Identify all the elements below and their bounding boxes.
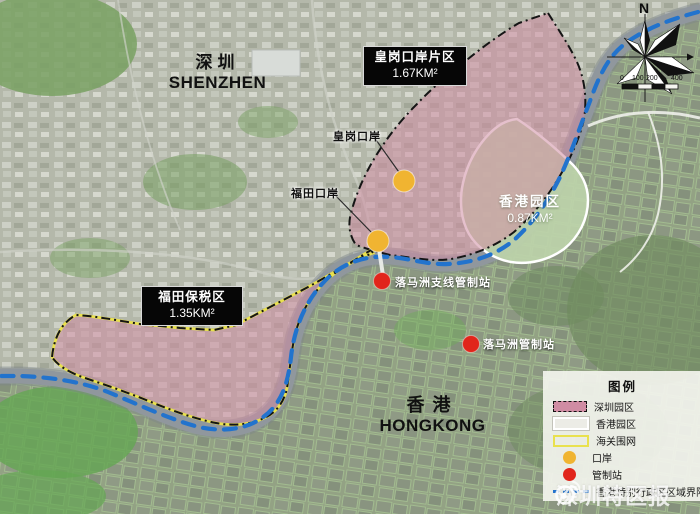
port-dot-futian <box>367 230 389 252</box>
legend-label: 深圳园区 <box>594 399 634 414</box>
checkpoint-label-lokmachau: 落马洲管制站 <box>483 336 555 352</box>
shenzhen-zone-swatch <box>553 401 587 412</box>
port-dot-swatch <box>563 451 576 464</box>
zone-name: 香港园区 <box>478 193 582 211</box>
park-patch <box>50 238 130 278</box>
park-patch <box>238 106 298 138</box>
scale-tick: 0 <box>620 75 624 82</box>
zone-area: 1.67KM² <box>368 66 462 81</box>
zone-name: 福田保税区 <box>146 290 238 306</box>
city-label-shenzhen: 深圳 SHENZHEN <box>155 53 280 92</box>
scale-tick: 200 <box>646 75 658 82</box>
hongkong-zone-swatch <box>553 417 589 430</box>
legend-label: 海关围网 <box>596 433 636 448</box>
scale-tick: 400 <box>671 75 683 82</box>
north-label: N <box>639 0 649 16</box>
city-label-hongkong: 香港 HONGKONG <box>370 395 495 435</box>
zone-label-hongkong-park: 香港园区 0.87KM² <box>478 193 582 226</box>
legend-item-customs-fence: 海关围网 <box>553 434 692 447</box>
scale-bar <box>622 84 678 89</box>
legend-item-hongkong-zone: 香港园区 <box>553 417 692 430</box>
legend-label: 口岸 <box>592 450 612 465</box>
weibo-icon <box>552 479 580 507</box>
checkpoint-dot-lokmachau-spur <box>374 273 391 290</box>
green-patch <box>394 310 466 350</box>
checkpoint-dot-lokmachau <box>463 336 480 353</box>
port-label-huanggang: 皇岗口岸 <box>333 128 381 144</box>
legend-item-shenzhen-zone: 深圳园区 <box>553 400 692 413</box>
zone-area: 1.35KM² <box>146 306 238 321</box>
shenzhen-en: SHENZHEN <box>155 73 280 93</box>
legend-item-port: 口岸 <box>553 451 692 464</box>
customs-fence-swatch <box>553 435 589 447</box>
shenzhen-cn: 深圳 <box>155 53 280 73</box>
hongkong-cn: 香港 <box>370 395 495 416</box>
port-dot-huanggang <box>393 170 415 192</box>
zone-label-huanggang: 皇岗口岸片区 1.67KM² <box>363 46 467 86</box>
scale-tick: 100 <box>632 75 644 82</box>
zone-name: 皇岗口岸片区 <box>368 50 462 66</box>
park-patch <box>143 154 247 210</box>
watermark: 深圳特区报 <box>552 479 671 511</box>
legend-label: 香港园区 <box>596 416 636 431</box>
checkpoint-label-lokmachau-spur: 落马洲支线管制站 <box>395 274 491 290</box>
zone-area: 0.87KM² <box>478 211 582 227</box>
port-label-futian: 福田口岸 <box>291 185 339 201</box>
hongkong-en: HONGKONG <box>370 416 495 436</box>
zone-label-futian: 福田保税区 1.35KM² <box>141 286 243 326</box>
legend-title: 图例 <box>553 376 692 395</box>
satellite-map: 0 100 200 400 N 深圳 SHENZHEN 香港 HONGKONG … <box>0 0 700 514</box>
